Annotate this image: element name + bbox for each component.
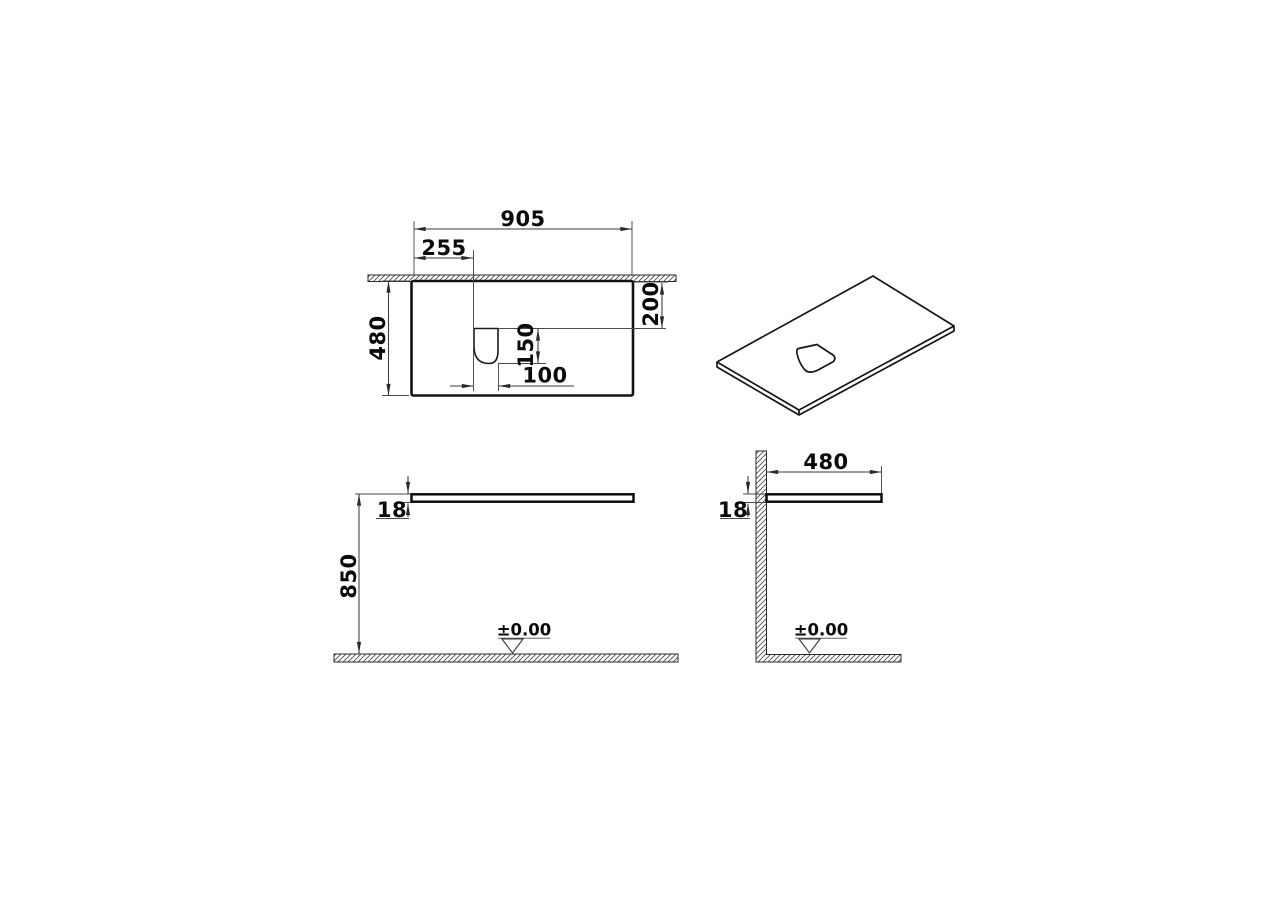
drawing-background xyxy=(0,0,1280,900)
technical-drawing-page: 905 255 480 200 150 100 18 xyxy=(0,0,1280,900)
technical-drawing-canvas: 905 255 480 200 150 100 18 xyxy=(0,0,1280,900)
dim-mounting-height-label: 850 xyxy=(337,553,361,598)
dim-cutout-back-offset-label: 200 xyxy=(639,281,663,326)
dim-thickness-label-side: 18 xyxy=(718,498,748,522)
dim-cutout-width-label: 100 xyxy=(522,364,567,388)
datum-label-front: ±0.00 xyxy=(497,621,552,640)
datum-label-side: ±0.00 xyxy=(794,621,849,640)
floor-hatch-front xyxy=(334,654,678,662)
countertop-panel-side xyxy=(767,494,882,501)
dim-overall-width-label: 905 xyxy=(500,207,545,231)
dim-depth-label: 480 xyxy=(366,315,390,360)
dim-thickness-label-front: 18 xyxy=(377,498,407,522)
countertop-panel-front xyxy=(412,494,634,501)
dim-cutout-depth-label: 150 xyxy=(514,322,538,367)
dim-cutout-offset-label: 255 xyxy=(421,236,466,260)
dim-panel-depth-label: 480 xyxy=(803,450,848,474)
